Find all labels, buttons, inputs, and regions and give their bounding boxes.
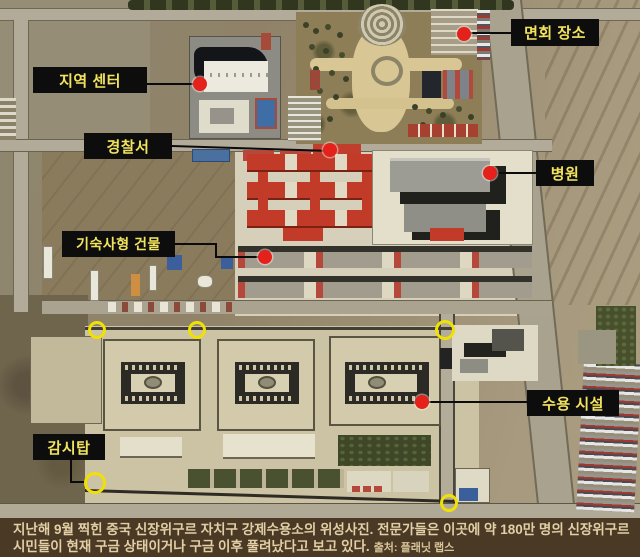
regional-center-building	[204, 61, 268, 92]
park-trees	[412, 104, 418, 110]
cell-courtyard	[245, 374, 289, 392]
blue-roof	[459, 488, 478, 501]
road-left-vertical	[13, 20, 29, 312]
caption-line-1: 지난해 9월 찍힌 중국 신장위구르 자치구 강제수용소의 위성사진. 전문가들…	[13, 521, 640, 538]
label-regional-center: 지역 센터	[33, 67, 147, 93]
cell-building	[235, 362, 299, 404]
road-bottom	[0, 503, 640, 518]
annex-courtyard	[210, 108, 234, 124]
dark-court	[422, 71, 441, 98]
label-police-station: 경찰서	[84, 133, 172, 159]
cell-courtyard	[355, 374, 417, 392]
watchtower-ring	[440, 494, 458, 512]
watchtower-ring	[188, 321, 206, 339]
label-watchtower: 감시탑	[33, 434, 105, 460]
red-structure	[310, 70, 320, 90]
cell-rooms	[125, 396, 181, 401]
callout-line-dormitory	[215, 256, 260, 258]
trailer	[43, 246, 53, 279]
label-dormitory-buildings: 기숙사형 건물	[62, 231, 175, 257]
cell-block	[329, 336, 441, 426]
annotated-satellite-graphic: 지역 센터 면회 장소 경찰서 병원 기숙사형 건물 수용 시설 감시탑 지난해…	[0, 0, 640, 557]
blue-roof-building	[455, 468, 490, 503]
marker-dot-regional-center	[193, 77, 207, 91]
trailer	[90, 270, 99, 301]
red-hall-connector	[258, 172, 268, 212]
west-annex-yard	[30, 336, 102, 424]
circular-plaza	[358, 4, 406, 46]
red-shed	[261, 33, 271, 50]
park-south-sheds	[408, 124, 478, 137]
caption-line-2-text: 시민들이 현재 구금 상태이거나 구금 이후 풀려났다고 보고 있다.	[13, 539, 370, 554]
tent	[197, 275, 213, 288]
blue-roof-building	[192, 149, 230, 162]
tree-grove	[338, 435, 431, 466]
white-building	[393, 471, 429, 492]
watchtower-ring	[435, 320, 455, 340]
parking-lot-right	[576, 362, 640, 513]
red-court	[443, 70, 473, 99]
cell-block	[217, 339, 315, 431]
paved-pad	[578, 330, 616, 364]
cell-rooms	[125, 365, 181, 370]
parking-row	[288, 96, 321, 141]
parked-trucks-row	[108, 302, 234, 312]
caption-source: 출처: 플래닛 랩스	[374, 542, 455, 554]
red-hall-connector	[362, 172, 372, 212]
gray-building	[460, 359, 488, 373]
white-building	[223, 434, 315, 459]
caption-line-2: 시민들이 현재 구금 상태이거나 구금 이후 풀려났다고 보고 있다.출처: 플…	[13, 538, 640, 557]
caption-bar: 지난해 9월 찍힌 중국 신장위구르 자치구 강제수용소의 위성사진. 전문가들…	[0, 518, 640, 557]
fountain-circle	[371, 56, 403, 86]
marker-dot-detention	[415, 395, 429, 409]
dormitory-row	[238, 246, 532, 268]
marker-dot-visiting-area	[457, 27, 471, 41]
roadside-parking-left	[0, 98, 16, 140]
red-hall	[283, 228, 323, 241]
white-building	[120, 437, 182, 458]
admin-building	[452, 325, 538, 381]
cell-block	[103, 339, 201, 431]
blue-roof-building	[221, 257, 233, 269]
cell-rooms	[239, 396, 295, 401]
callout-line-dormitory	[175, 243, 217, 245]
red-hall-connector	[310, 172, 320, 212]
park-trees	[303, 22, 309, 28]
callout-line-detention	[429, 401, 527, 403]
cell-rooms	[349, 396, 425, 401]
red-hall-row	[247, 210, 373, 228]
marker-dot-hospital	[483, 166, 497, 180]
courtyard-oval	[258, 376, 276, 389]
small-shops-row	[352, 486, 382, 492]
orange-container	[131, 274, 140, 296]
red-roof-building	[430, 228, 464, 241]
marker-dot-dormitory	[258, 250, 272, 264]
marker-dot-police-station	[323, 143, 337, 157]
building-shadow	[492, 329, 524, 351]
park-path	[326, 98, 454, 109]
callout-line-visiting-area	[470, 32, 511, 34]
cell-courtyard	[131, 374, 175, 392]
callout-line-hospital	[497, 172, 536, 174]
callout-line-watchtower	[70, 460, 72, 483]
trailer	[149, 265, 157, 291]
blue-sports-court	[255, 98, 277, 129]
parked-cars-column	[477, 10, 490, 60]
watchtower-ring	[88, 321, 106, 339]
cell-rooms	[239, 365, 295, 370]
hedge-row	[188, 469, 344, 488]
cell-rooms	[349, 365, 425, 370]
blue-roof-building	[167, 255, 182, 270]
label-visiting-area: 면회 장소	[511, 19, 599, 46]
dormitory-row	[238, 276, 532, 298]
callout-line-regional-center	[147, 83, 193, 85]
courtyard-oval	[144, 376, 162, 389]
perimeter-wall-top	[85, 327, 459, 330]
watchtower-ring	[84, 472, 106, 494]
callout-line-watchtower	[70, 481, 85, 483]
label-detention-facility: 수용 시설	[527, 390, 619, 416]
hospital-building	[390, 158, 490, 192]
label-hospital: 병원	[536, 160, 594, 186]
courtyard-oval	[368, 376, 386, 389]
cell-building	[121, 362, 185, 404]
